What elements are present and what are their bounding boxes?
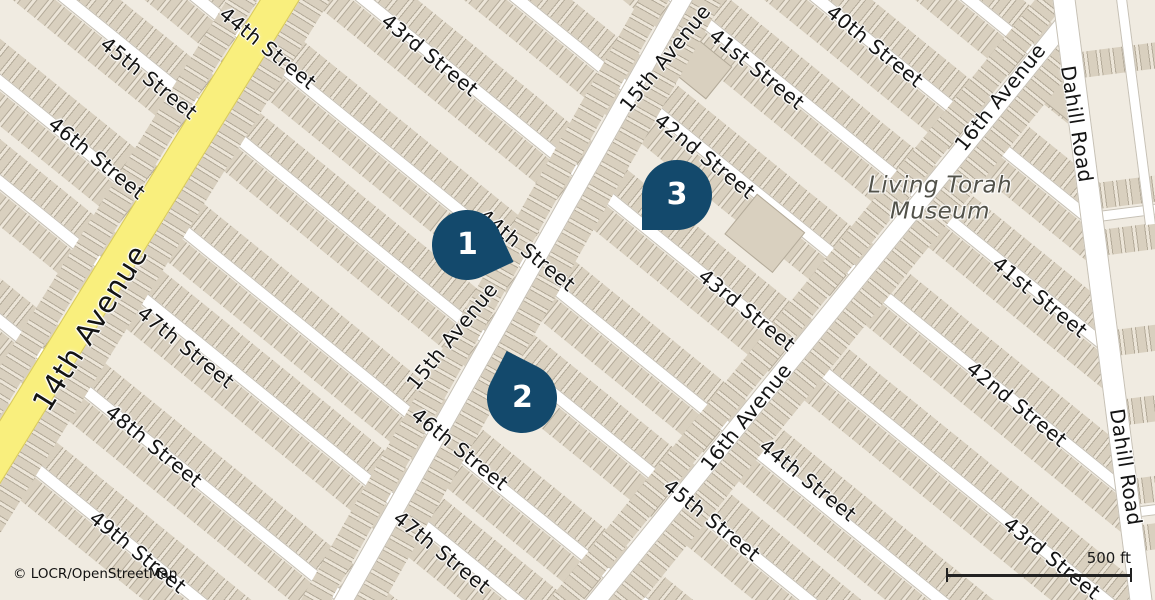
scale-bar-line [946, 568, 1132, 582]
scale-bar-label: 500 ft [946, 549, 1132, 567]
map-attribution: © LOCR/OpenStreetMap [13, 566, 177, 582]
map-pin-number: 3 [667, 180, 688, 210]
map-pin-number: 1 [457, 230, 478, 260]
map-pin-3[interactable]: 3 [642, 160, 712, 230]
building-row [1074, 2, 1155, 79]
scale-bar: 500 ft [946, 549, 1132, 582]
label-living-torah-museum-26: Living Torah Museum [853, 173, 1028, 225]
map-viewport[interactable]: 44th Street43rd Street45th Street46th St… [0, 0, 1155, 600]
map-pin-number: 2 [512, 383, 533, 413]
